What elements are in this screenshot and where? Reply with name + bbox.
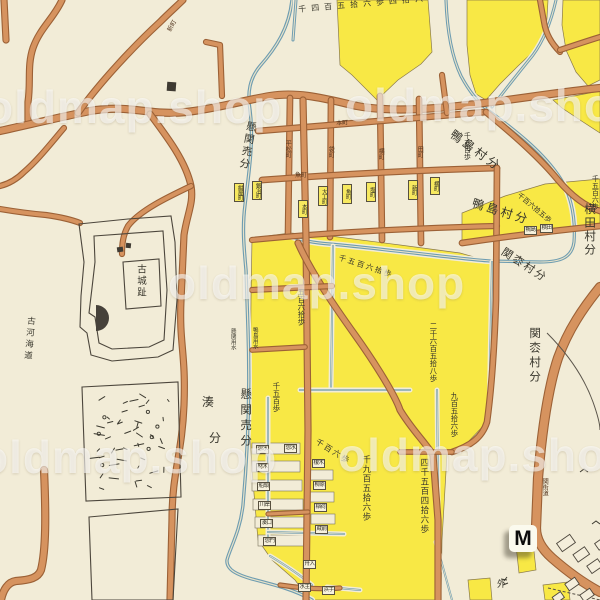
scribble-mark	[100, 474, 103, 478]
block-tag: 船頭	[257, 482, 270, 491]
block-tag: 蔵前	[315, 525, 328, 534]
block-tag-text: 鴨島	[525, 228, 535, 234]
block-tag-text: 惣門	[264, 539, 274, 545]
block-tag-text: 魚町	[344, 189, 350, 199]
scribble-mark	[109, 478, 118, 479]
castle-outline	[79, 216, 177, 361]
old-map-canvas: 鴨島村分 鴨島村分 横田村分 関枩村分 関枩村分 懸関売分 懸関売分 湊 分 古…	[0, 0, 600, 600]
scribble-mark	[116, 449, 123, 450]
block-tag-text: 横田	[541, 226, 551, 232]
block-tag-text: 紺屋町	[236, 185, 242, 200]
scribble-mark	[108, 422, 113, 423]
street-name: 横町	[377, 148, 383, 160]
block-tag: 横町	[430, 177, 440, 195]
block-tag: 惣水	[284, 444, 297, 453]
scribble-mark	[133, 427, 138, 430]
scribble-circle	[103, 416, 106, 419]
block-tag-text: 稲荷	[315, 505, 325, 511]
street-name: 関街道	[541, 478, 547, 496]
block-tag: 浜手	[322, 586, 335, 595]
block-tag: 稲荷	[314, 503, 327, 512]
block-tag: 横田	[540, 224, 553, 233]
area-label: 五百六拾歩	[297, 288, 305, 326]
block-tag-text: 材木	[257, 465, 267, 471]
map-marker-m[interactable]: M	[509, 525, 537, 552]
empty-block-outline	[89, 509, 178, 600]
scribble-mark	[109, 464, 119, 466]
scribble-circle	[147, 447, 150, 450]
castle-gate-fan	[96, 305, 109, 331]
block-tag: 鴨島	[524, 226, 537, 235]
block-tag-text: 水主	[299, 585, 309, 591]
area-label: 千五百歩	[272, 382, 280, 412]
scribble-mark	[139, 405, 144, 407]
area-label: 二千六百五拾八歩	[429, 322, 437, 382]
block-tag-text: 惣水	[257, 447, 267, 453]
label-yosui-2: 鴨島用水	[251, 327, 257, 349]
scribble-mark	[130, 400, 138, 402]
block-tag: 惣門	[263, 537, 276, 546]
block-tag-text: 湊口	[261, 521, 271, 527]
block-tag: 新町	[408, 180, 418, 200]
block-tag-text: 新町	[410, 185, 416, 195]
scribble-mark	[168, 400, 170, 402]
block-tag: 本町	[298, 200, 308, 218]
parcel	[553, 91, 600, 133]
block-tag: 湊口	[260, 519, 273, 528]
street-name: 平松町	[284, 140, 290, 158]
road	[4, 0, 6, 40]
scribble-mark	[90, 457, 99, 458]
scribble-circle	[146, 410, 149, 413]
scribble-mark	[150, 471, 158, 473]
road	[288, 98, 290, 236]
scribble-mark	[122, 410, 127, 412]
scribble-mark	[100, 488, 104, 490]
scribble-mark	[134, 444, 144, 446]
area-label: 外	[497, 580, 506, 589]
street-name: 田町	[416, 146, 422, 158]
label-yosui-1: 懸関用水	[229, 328, 235, 350]
scribble-mark	[137, 433, 143, 437]
label-minato-2: 分	[209, 432, 221, 445]
scribble-mark	[138, 443, 139, 446]
scribble-mark	[107, 417, 109, 419]
block-tag: 材木	[256, 463, 269, 472]
area-label: 四千五百四拾六歩	[420, 458, 429, 534]
garden-scribbles	[90, 394, 169, 489]
scribble-mark	[117, 459, 126, 461]
block-tag-text: 浜手	[323, 588, 333, 594]
street-name: 袋町	[327, 146, 333, 158]
block-tag-text: 横町	[432, 181, 438, 191]
scribble-mark	[137, 422, 138, 427]
scribble-mark	[159, 447, 165, 449]
block-tag: 水主	[298, 583, 311, 592]
parcel	[468, 578, 492, 600]
area-label: 千五百歩	[463, 132, 470, 160]
block-tag-text: 鍛冶町	[254, 183, 260, 198]
block-tag: 榎木	[312, 459, 325, 468]
black-house-square	[167, 82, 177, 92]
scribble-mark	[160, 439, 162, 444]
label-yokota: 横田村分	[583, 203, 595, 257]
scribble-mark	[124, 448, 127, 450]
street-name: 本町	[336, 120, 348, 127]
area-label: 千五百六歩	[591, 175, 598, 210]
block-tag: 川岸	[258, 501, 271, 510]
block-tag: 魚町	[342, 184, 352, 204]
scribble-mark	[123, 402, 127, 404]
block-tag-text: 大工町	[320, 189, 326, 204]
block-tag: 塩町	[366, 182, 376, 202]
block-tag-text: 本町	[300, 204, 306, 214]
road	[78, 0, 183, 113]
scribble-mark	[105, 437, 110, 439]
scribble-mark	[136, 480, 142, 481]
label-kakeseki-2: 懸関売分	[239, 388, 251, 450]
parcel	[337, 0, 432, 100]
road-edge	[28, 0, 62, 120]
scribble-mark	[97, 449, 99, 451]
scribble-mark	[99, 397, 105, 401]
road	[268, 512, 308, 514]
scribble-mark	[112, 448, 115, 453]
scribble-mark	[135, 482, 137, 487]
block-tag-text: 川岸	[259, 503, 269, 509]
scribble-mark	[147, 486, 151, 488]
scribble-circle	[156, 425, 159, 428]
block-tag: 鍛冶町	[252, 181, 262, 200]
scribble-mark	[97, 426, 105, 428]
road	[330, 100, 331, 237]
block-tag: 紺屋町	[234, 183, 244, 202]
label-old-castle: 古城趾	[134, 264, 144, 299]
scribble-mark	[140, 394, 146, 398]
block-tag: 舟入	[303, 560, 316, 569]
area-label: 千九百五拾六歩	[362, 455, 371, 522]
block-tag-text: 船頭	[258, 484, 268, 490]
scribble-mark	[125, 431, 131, 433]
block-tag-text: 柳原	[314, 483, 324, 489]
garden-outline	[82, 382, 181, 501]
street-name: 魚町	[295, 173, 307, 179]
block-tag-text: 舟入	[304, 562, 314, 568]
block-tag: 惣水	[256, 445, 269, 454]
road	[0, 128, 64, 186]
scribble-mark	[141, 458, 145, 460]
scribble-mark	[138, 466, 139, 468]
scribble-mark	[146, 400, 149, 404]
block-tag: 柳原	[313, 481, 326, 490]
block-tag-text: 蔵前	[316, 527, 326, 533]
block-tag-text: 榎木	[313, 461, 323, 467]
label-sekimatsu-2: 関枩村分	[528, 327, 540, 385]
block-tag: 大工町	[318, 186, 328, 206]
block-tag-text: 惣水	[285, 446, 295, 452]
area-label: 九百五拾六歩	[450, 392, 458, 437]
label-minato-1: 湊	[202, 396, 214, 409]
scribble-circle	[101, 464, 104, 467]
block-tag-text: 塩町	[368, 187, 374, 197]
scribble-mark	[99, 456, 104, 458]
